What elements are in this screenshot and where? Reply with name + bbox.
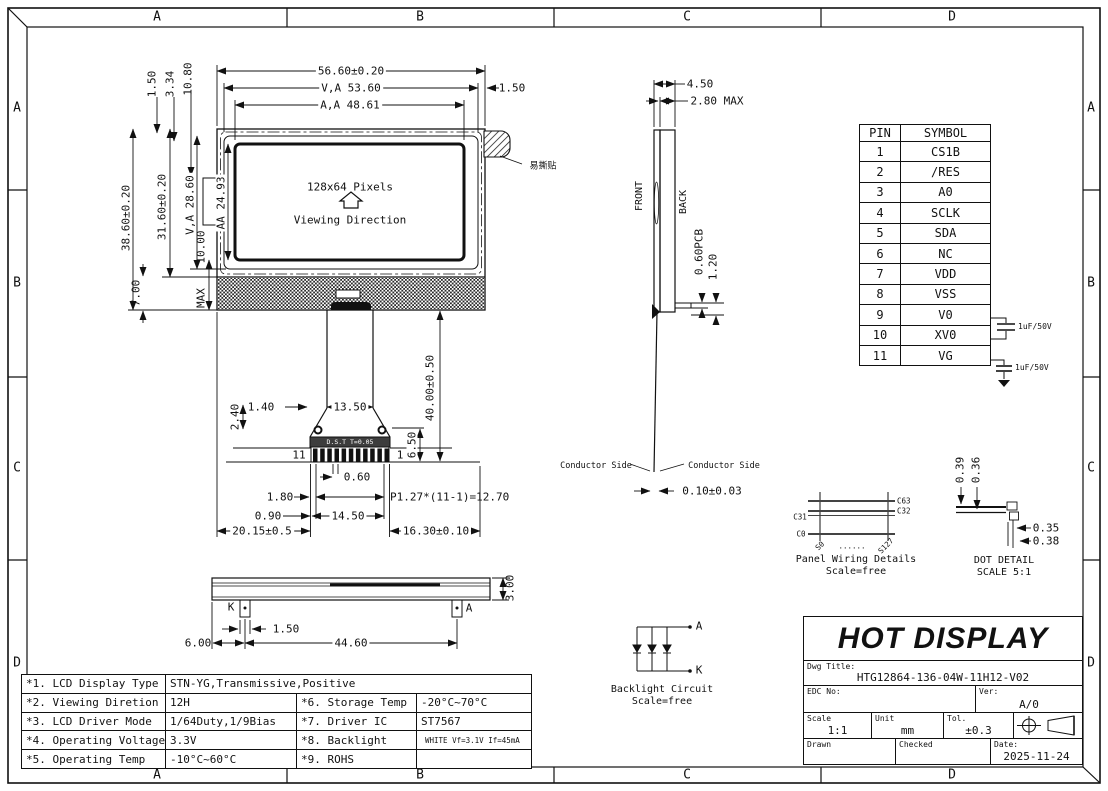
dwg-title-row: Dwg Title: HTG12864-136-04W-11H12-V02 [804, 661, 1082, 686]
symbol-cell: VDD [901, 264, 991, 284]
table-row: 2/RES [860, 162, 991, 182]
pin-cell: 1 [860, 142, 901, 162]
edc-label: EDC No: [807, 688, 841, 696]
capacitor-value-label: 1uF/50V [1015, 364, 1049, 372]
date-value: 2025-11-24 [1003, 751, 1069, 762]
dim-2015: 20.15±0.5 [230, 526, 294, 537]
wiring-label-c32: C32 [897, 507, 911, 515]
table-row: 4SCLK [860, 203, 991, 223]
symbol-cell: CS1B [901, 142, 991, 162]
scale-value: 1:1 [828, 725, 848, 736]
projection-cell [1014, 713, 1082, 738]
spec-label: *2. Viewing Diretion [22, 693, 166, 712]
tear-sticker-label: 易撕贴 [529, 163, 556, 172]
dim-036: 0.36 [971, 457, 982, 484]
viewing-direction-arrow-icon [340, 192, 362, 208]
zone-label: B [1087, 277, 1095, 290]
zone-label: D [13, 657, 21, 670]
led-icon [633, 645, 671, 653]
front-side-label: FRONT [635, 181, 645, 211]
panel-wiring-diagram [808, 492, 895, 541]
checked-label: Checked [899, 741, 933, 749]
unit-value: mm [901, 725, 914, 736]
capacitor-value-label: 1uF/50V [1018, 323, 1052, 331]
dim-total-height: 38.60±0.20 [121, 183, 132, 253]
dim-450s: 4.50 [687, 79, 714, 90]
zone-label: A [13, 102, 21, 115]
ground-icon [998, 380, 1010, 387]
table-row: 3A0 [860, 182, 991, 202]
spec-table: *1. LCD Display Type STN-YG,Transmissive… [21, 674, 532, 769]
ver-value: A/0 [1019, 699, 1039, 710]
tol-cell: Tol. ±0.3 [944, 713, 1014, 738]
dim-glass-height: 31.60±0.20 [157, 172, 168, 242]
dim-aa-height: AA 24.93 [216, 175, 227, 232]
table-row: 1CS1B [860, 142, 991, 162]
capacitor-symbol [990, 360, 1012, 387]
spec-value: ST7567 [417, 712, 532, 731]
spec-label: *8. Backlight [297, 731, 417, 750]
panel-wiring-scale: Scale=free [826, 567, 886, 577]
dim-backlight-gap-max: MAX [196, 288, 207, 308]
cathode-label: K [228, 602, 235, 613]
connector-pins [313, 449, 389, 462]
spec-label: *5. Operating Temp [22, 750, 166, 769]
date-cell: Date: 2025-11-24 [991, 739, 1082, 764]
table-row: *1. LCD Display Type STN-YG,Transmissive… [22, 675, 532, 694]
zone-label: C [1087, 462, 1095, 475]
table-row: *2. Viewing Diretion 12H *6. Storage Tem… [22, 693, 532, 712]
dim-top-offset-2: 3.34 [165, 71, 176, 98]
spec-value: 12H [166, 693, 297, 712]
drawn-checked-date-row: Drawn Checked Date: 2025-11-24 [804, 739, 1082, 764]
symbol-cell: VSS [901, 284, 991, 304]
pin-number-left: 11 [292, 450, 305, 461]
checked-cell: Checked [896, 739, 991, 764]
backlight-circuit-title: Backlight Circuit [611, 685, 713, 695]
zone-label: D [948, 11, 956, 24]
edc-cell: EDC No: [804, 686, 976, 712]
unit-label: Unit [875, 715, 894, 723]
dim-top-offset-3: 10.80 [183, 62, 194, 95]
dim-4460: 44.60 [332, 638, 369, 649]
dim-280s: 2.80 MAX [691, 96, 744, 107]
table-row: 5SDA [860, 223, 991, 243]
dim-140: 1.40 [248, 402, 275, 413]
dim-pcb: 0.60PCB [694, 229, 705, 275]
spec-value: -10°C~60°C [166, 750, 297, 769]
table-row: 7VDD [860, 264, 991, 284]
table-row: *5. Operating Temp -10°C~60°C *9. ROHS [22, 750, 532, 769]
unit-cell: Unit mm [872, 713, 944, 738]
pin-cell: 10 [860, 325, 901, 345]
pin-cell: 8 [860, 284, 901, 304]
pin-cell: 2 [860, 162, 901, 182]
dim-aa-width: A,A 48.61 [318, 100, 382, 111]
dim-backlight-gap: 10.00 [196, 230, 207, 263]
dim-va-height: V,A 28.60 [185, 173, 196, 237]
tol-value: ±0.3 [965, 725, 992, 736]
dim-039: 0.39 [955, 457, 966, 484]
tear-sticker-tab [484, 131, 510, 157]
pin-cell: 9 [860, 305, 901, 325]
pin-cell: 11 [860, 345, 901, 365]
spec-label: *1. LCD Display Type [22, 675, 166, 694]
projection-symbol-icon [1014, 713, 1082, 738]
symbol-cell: /RES [901, 162, 991, 182]
scale-label: Scale [807, 715, 831, 723]
dim-240: 2.40 [230, 404, 241, 431]
zone-label: C [683, 769, 691, 782]
table-row: 9V0 [860, 305, 991, 325]
symbol-cell: A0 [901, 182, 991, 202]
spec-value: WHITE Vf=3.1V If=45mA [417, 731, 532, 750]
bottom-view [212, 578, 490, 617]
spec-label: *9. ROHS [297, 750, 417, 769]
backlight-circuit-diagram [633, 625, 692, 673]
wiring-label-c31: C31 [793, 513, 807, 521]
symbol-cell: VG [901, 345, 991, 365]
dim-300: 3.00 [505, 575, 516, 602]
symbol-cell: SCLK [901, 203, 991, 223]
dwg-title-label: Dwg Title: [807, 663, 855, 671]
lcd-module-engineering-drawing: { "colors": {"line": "#111111", "paper":… [0, 0, 1108, 791]
dim-038: 0.38 [1033, 536, 1060, 547]
dim-right-margin: 1.50 [499, 83, 526, 94]
zone-label: B [416, 769, 424, 782]
spec-label: *3. LCD Driver Mode [22, 712, 166, 731]
scale-cell: Scale 1:1 [804, 713, 872, 738]
dim-180: 1.80 [267, 492, 294, 503]
table-row: *3. LCD Driver Mode 1/64Duty,1/9Bias *7.… [22, 712, 532, 731]
dim-1630: 16.30±0.10 [401, 526, 471, 537]
table-row: 11VG [860, 345, 991, 365]
tol-label: Tol. [947, 715, 966, 723]
dim-bottom-height: 7.00 [131, 280, 142, 307]
zone-label: B [13, 277, 21, 290]
dim-pitch: P1.27*(11-1)=12.70 [390, 492, 509, 503]
dim-010: 0.10±0.03 [682, 486, 742, 497]
date-label: Date: [994, 741, 1018, 749]
dot-detail-scale: SCALE 5:1 [977, 568, 1031, 578]
pin-table-header-pin: PIN [860, 125, 901, 142]
dim-120s: 1.20 [708, 254, 719, 281]
pixels-label: 128x64 Pixels [307, 182, 393, 193]
side-view-dims [634, 80, 724, 491]
conductor-side-right: Conductor Side [688, 462, 760, 471]
anode-label: A [466, 603, 473, 614]
ver-label: Ver: [979, 688, 998, 696]
company-logo: HOT DISPLAY [804, 617, 1082, 661]
dim-650: 6.50 [407, 430, 418, 461]
dim-600: 6.00 [185, 638, 212, 649]
zone-label: C [13, 462, 21, 475]
spec-label: *7. Driver IC [297, 712, 417, 731]
drawn-label: Drawn [807, 741, 831, 749]
symbol-cell: SDA [901, 223, 991, 243]
scale-unit-tol-row: Scale 1:1 Unit mm Tol. ±0.3 [804, 713, 1082, 739]
pin-table: PIN SYMBOL 1CS1B 2/RES 3A0 4SCLK 5SDA 6N… [859, 124, 991, 366]
alignment-hole [315, 427, 322, 434]
zone-label: C [683, 11, 691, 24]
table-row: 10XV0 [860, 325, 991, 345]
wiring-dots: ...... [838, 542, 865, 550]
spec-value: -20°C~70°C [417, 693, 532, 712]
drawn-cell: Drawn [804, 739, 896, 764]
dim-035: 0.35 [1033, 523, 1060, 534]
dim-150b: 1.50 [273, 624, 300, 635]
zone-label: D [1087, 657, 1095, 670]
pin-cell: 4 [860, 203, 901, 223]
symbol-cell: NC [901, 243, 991, 263]
dim-va-width: V,A 53.60 [319, 83, 383, 94]
dwg-title-value: HTG12864-136-04W-11H12-V02 [857, 672, 1029, 683]
pin-cell: 3 [860, 182, 901, 202]
ver-cell: Ver: A/0 [976, 686, 1082, 712]
backlight-anode-label: A [696, 621, 703, 632]
symbol-cell: XV0 [901, 325, 991, 345]
wiring-label-c0: C0 [796, 530, 805, 538]
symbol-cell: V0 [901, 305, 991, 325]
table-row: 8VSS [860, 284, 991, 304]
dim-060: 0.60 [344, 472, 371, 483]
dim-1350: 13.50 [331, 402, 368, 413]
alignment-hole [379, 427, 386, 434]
panel-wiring-title: Panel Wiring Details [796, 555, 916, 565]
dot-detail-title: DOT DETAIL [974, 556, 1034, 566]
dim-total-width: 56.60±0.20 [316, 66, 386, 77]
title-block: HOT DISPLAY Dwg Title: HTG12864-136-04W-… [803, 616, 1083, 765]
fpc-exit-tab [331, 302, 371, 310]
table-row: *4. Operating Voltage 3.3V *8. Backlight… [22, 731, 532, 750]
spec-label: *4. Operating Voltage [22, 731, 166, 750]
back-side-label: BACK [679, 190, 689, 214]
dim-top-offset-1: 1.50 [147, 71, 158, 98]
zone-label: A [1087, 102, 1095, 115]
zone-label: A [153, 11, 161, 24]
spec-value: 1/64Duty,1/9Bias [166, 712, 297, 731]
backlight-circuit-scale: Scale=free [632, 697, 692, 707]
dim-090: 0.90 [255, 511, 282, 522]
spec-value [417, 750, 532, 769]
dot-detail-diagram [956, 487, 1031, 548]
spec-label: *6. Storage Temp [297, 693, 417, 712]
dim-4000: 40.00±0.50 [425, 353, 436, 423]
pin-cell: 5 [860, 223, 901, 243]
capacitor-symbol [990, 318, 1015, 339]
conductor-side-left: Conductor Side [560, 462, 632, 471]
dim-1450: 14.50 [329, 511, 366, 522]
edc-ver-row: EDC No: Ver: A/0 [804, 686, 1082, 713]
pin-cell: 6 [860, 243, 901, 263]
pin-table-header-symbol: SYMBOL [901, 125, 991, 142]
pin-number-right: 1 [397, 450, 404, 461]
zone-label: B [416, 11, 424, 24]
spec-value: 3.3V [166, 731, 297, 750]
viewing-direction-label: Viewing Direction [294, 215, 407, 226]
dst-strip-label: D.S.T T=0.05 [327, 439, 374, 446]
wiring-label-c63: C63 [897, 497, 911, 505]
pin-cell: 7 [860, 264, 901, 284]
table-row: 6NC [860, 243, 991, 263]
zone-label: D [948, 769, 956, 782]
backlight-cathode-label: K [696, 665, 703, 676]
zone-label: A [153, 769, 161, 782]
spec-value: STN-YG,Transmissive,Positive [166, 675, 532, 694]
